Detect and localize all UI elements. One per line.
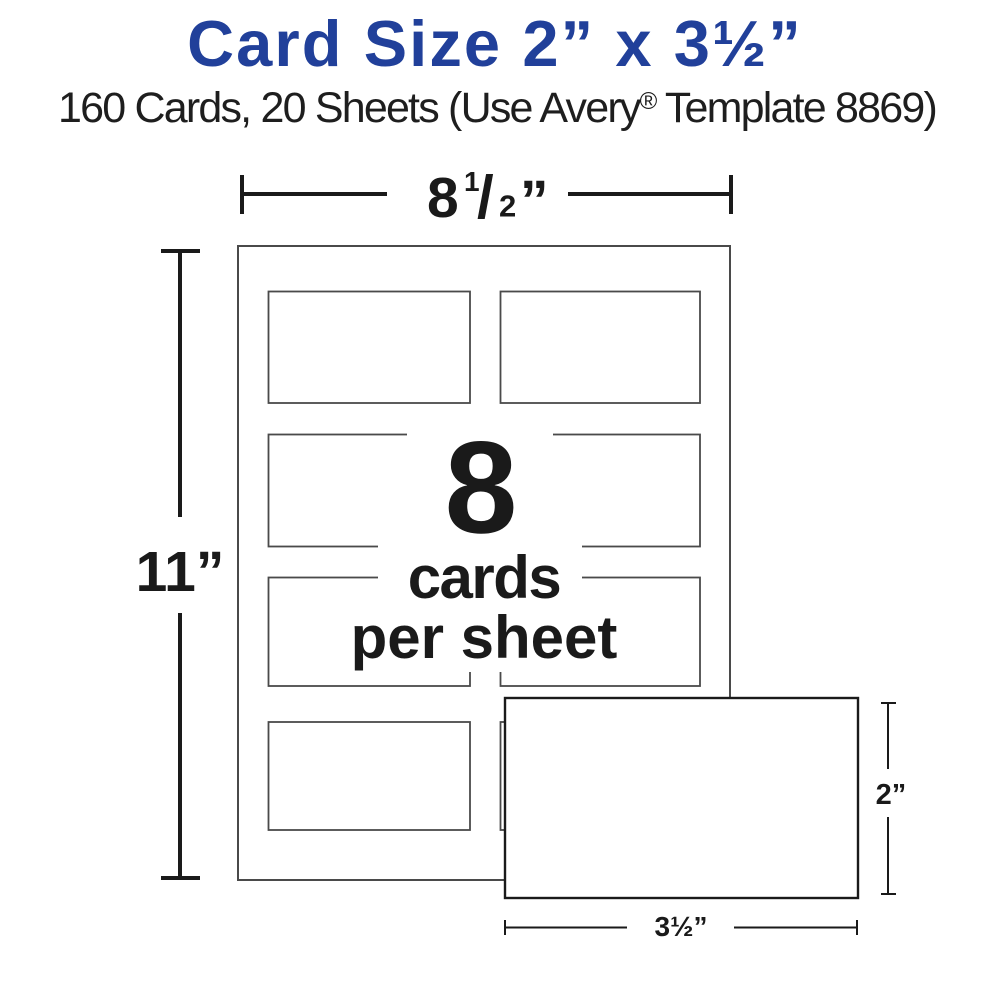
svg-text:8: 8 xyxy=(427,166,459,230)
svg-text:/: / xyxy=(477,164,494,231)
svg-text:8: 8 xyxy=(445,414,518,561)
svg-text:11”: 11” xyxy=(136,540,225,604)
svg-text:2”: 2” xyxy=(876,779,907,811)
svg-text:cards: cards xyxy=(408,544,561,611)
svg-text:per sheet: per sheet xyxy=(351,604,618,671)
svg-text:160 Cards, 20 Sheets (Use Aver: 160 Cards, 20 Sheets (Use Avery® Templat… xyxy=(58,84,936,132)
svg-text:3½”: 3½” xyxy=(655,911,708,942)
svg-text:Card Size 2” x 3½”: Card Size 2” x 3½” xyxy=(187,7,803,80)
svg-text:”: ” xyxy=(520,169,549,233)
svg-text:2: 2 xyxy=(499,189,516,224)
